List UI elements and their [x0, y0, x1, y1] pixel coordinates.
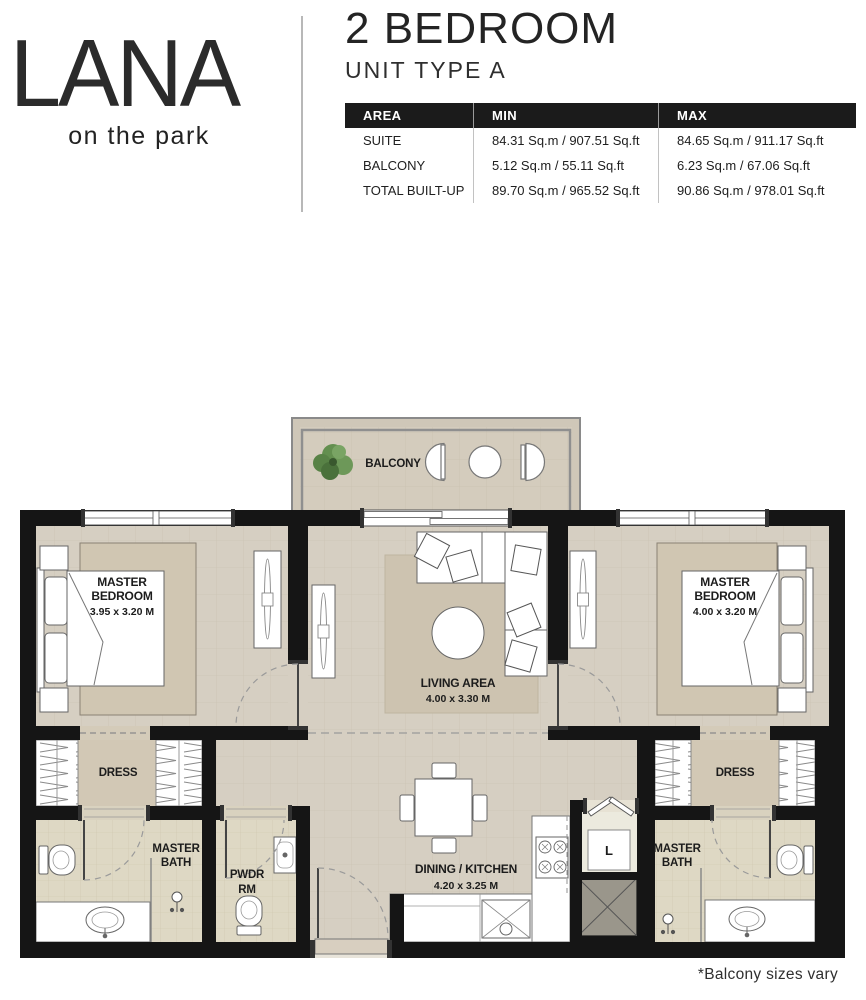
bedroom-right-label-2: BEDROOM: [694, 589, 755, 603]
window: [81, 509, 235, 527]
nightstand: [40, 688, 68, 712]
service-shaft: [578, 878, 637, 936]
living-dims: 4.00 x 3.30 M: [426, 693, 490, 705]
dining-chair: [400, 795, 414, 821]
laundry-label: L: [605, 843, 613, 858]
dining-chair: [473, 795, 487, 821]
toilet-icon: [777, 845, 813, 875]
dress-right-label: DRESS: [716, 767, 755, 779]
bed-headboard: [806, 568, 813, 692]
bed-pillow: [781, 633, 803, 683]
nightstand: [778, 546, 806, 570]
floorplan-drawing: BALCONY: [0, 0, 866, 1000]
balcony-footnote: *Balcony sizes vary: [698, 966, 838, 984]
nightstand: [40, 546, 68, 570]
laundry-closet: L: [582, 812, 637, 872]
pwdr-label-1: PWDR: [230, 869, 265, 881]
bedroom-left-label-1: MASTER: [97, 575, 147, 589]
openings-top-wall: [81, 508, 769, 528]
bath-left-label-1: MASTER: [152, 843, 200, 855]
dining-label: DINING / KITCHEN: [415, 862, 517, 876]
balcony-label: BALCONY: [365, 458, 421, 470]
balcony-table-icon: [469, 446, 501, 478]
bedroom-left-label-2: BEDROOM: [91, 589, 152, 603]
vanity-sink: [36, 902, 150, 942]
nightstand: [778, 688, 806, 712]
bedroom-left-dims: 3.95 x 3.20 M: [90, 606, 154, 618]
toilet-icon: [39, 845, 75, 875]
window: [616, 509, 769, 527]
stove-icon: [536, 837, 568, 878]
bed-pillow: [45, 633, 67, 683]
bath-left-label-2: BATH: [161, 857, 191, 869]
dress-left-label: DRESS: [99, 767, 138, 779]
living-label: LIVING AREA: [421, 676, 496, 690]
bath-right-label-1: MASTER: [653, 843, 701, 855]
kitchen-sink-icon: [482, 900, 530, 938]
dining-chair: [432, 838, 456, 853]
bed-pillow: [45, 577, 67, 625]
wall-sink-icon: [274, 837, 296, 873]
kitchen-counter: [532, 816, 570, 942]
room-balcony: BALCONY: [292, 418, 580, 513]
bedroom-right-dims: 4.00 x 3.20 M: [693, 606, 757, 618]
dining-dims: 4.20 x 3.25 M: [434, 880, 498, 892]
vanity-sink: [705, 900, 815, 942]
bedroom-right-label-1: MASTER: [700, 575, 750, 589]
entry-door-slab: [315, 939, 388, 954]
pwdr-label-2: RM: [238, 884, 256, 896]
dining-table: [415, 779, 472, 836]
balcony-furniture: [426, 444, 545, 481]
toilet-icon: [236, 896, 262, 935]
floorplan-page: LANA on the park 2 BEDROOM UNIT TYPE A A…: [0, 0, 866, 1000]
bath-right-label-2: BATH: [662, 857, 692, 869]
sliding-door: [360, 508, 512, 528]
bed-pillow: [781, 577, 803, 625]
sofa-pillow: [511, 545, 541, 575]
coffee-table: [432, 607, 484, 659]
bed-headboard: [37, 568, 44, 692]
dining-chair: [432, 763, 456, 778]
